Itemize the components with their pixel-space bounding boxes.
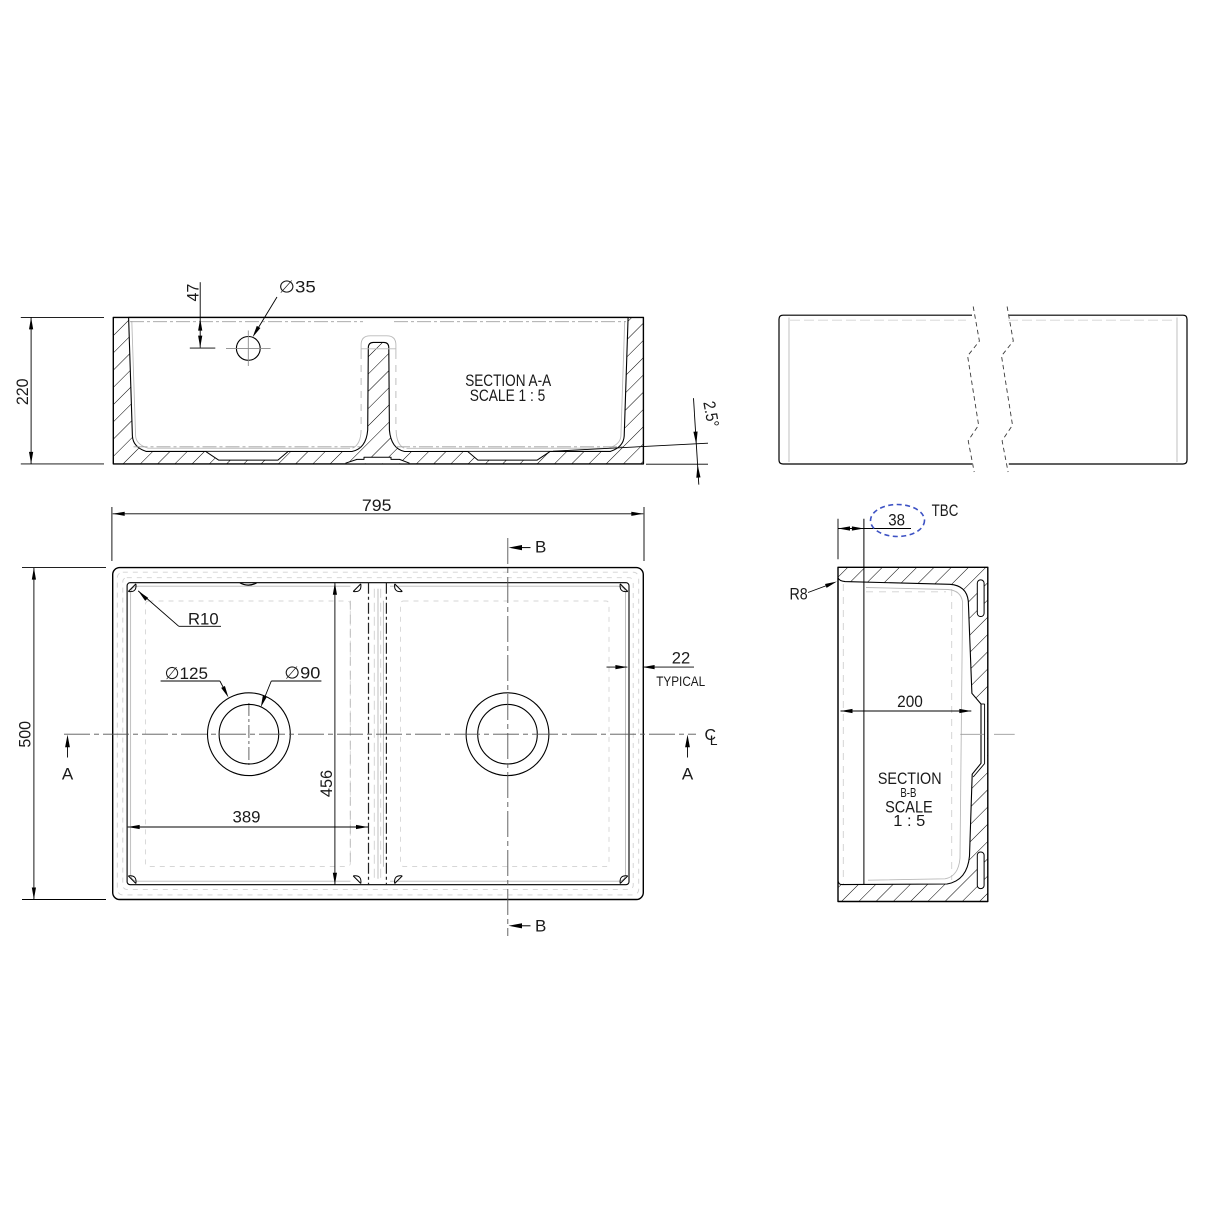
svg-text:∅90: ∅90	[284, 664, 320, 683]
svg-text:795: 795	[362, 496, 392, 515]
svg-text:B: B	[535, 916, 546, 935]
svg-text:R10: R10	[188, 609, 219, 628]
svg-text:R8: R8	[790, 584, 808, 603]
svg-text:A: A	[62, 764, 74, 783]
svg-text:L: L	[710, 732, 718, 748]
svg-text:456: 456	[317, 770, 336, 797]
svg-text:47: 47	[184, 284, 203, 302]
svg-text:38: 38	[888, 511, 905, 530]
svg-text:∅35: ∅35	[279, 278, 316, 297]
svg-text:A: A	[682, 764, 694, 783]
svg-text:200: 200	[897, 692, 923, 711]
svg-text:B: B	[535, 537, 546, 556]
svg-text:22: 22	[672, 649, 691, 668]
svg-text:∅125: ∅125	[165, 664, 208, 683]
svg-text:TYPICAL: TYPICAL	[656, 673, 705, 689]
svg-text:220: 220	[13, 378, 32, 405]
svg-text:SCALE 1 : 5: SCALE 1 : 5	[470, 386, 546, 405]
svg-text:1 : 5: 1 : 5	[893, 813, 925, 830]
svg-text:500: 500	[15, 721, 34, 748]
svg-text:389: 389	[233, 807, 261, 826]
svg-text:TBC: TBC	[932, 501, 959, 520]
